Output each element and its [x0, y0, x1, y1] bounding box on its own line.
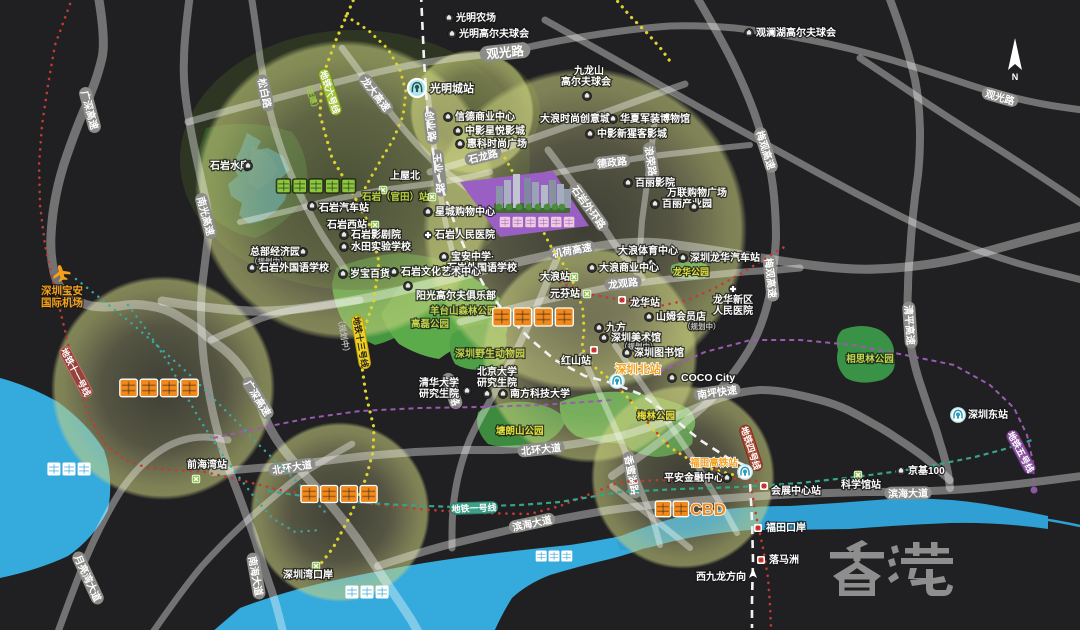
svg-text:前海湾站: 前海湾站 — [187, 458, 227, 471]
svg-text:石岩外国语学校: 石岩外国语学校 — [258, 261, 330, 274]
svg-text:滨海大道: 滨海大道 — [888, 487, 928, 501]
svg-text:大浪站: 大浪站 — [540, 270, 570, 283]
svg-text:高尔夫球会: 高尔夫球会 — [561, 75, 611, 88]
svg-text:COCO City: COCO City — [681, 372, 735, 384]
svg-text:石岩影剧院: 石岩影剧院 — [350, 228, 401, 241]
svg-text:地铁一号线: 地铁一号线 — [451, 502, 496, 515]
svg-text:深圳图书馆: 深圳图书馆 — [634, 346, 684, 359]
svg-text:科学馆站: 科学馆站 — [841, 478, 881, 491]
svg-text:龙华新区: 龙华新区 — [712, 293, 753, 306]
svg-text:宝安中学·: 宝安中学· — [451, 250, 494, 263]
svg-text:中影新猩客影城: 中影新猩客影城 — [597, 127, 667, 140]
svg-text:N: N — [1012, 72, 1019, 82]
svg-text:石岩文化艺术中心: 石岩文化艺术中心 — [400, 265, 481, 278]
svg-text:人民医院: 人民医院 — [713, 304, 753, 317]
svg-text:九龙山: 九龙山 — [573, 64, 604, 77]
svg-text:中影星悦影城: 中影星悦影城 — [465, 124, 525, 137]
svg-text:CBD: CBD — [690, 501, 726, 519]
svg-text:光明农场: 光明农场 — [455, 11, 496, 24]
svg-text:京基100: 京基100 — [908, 464, 945, 477]
svg-text:观澜湖高尔夫球会: 观澜湖高尔夫球会 — [756, 26, 836, 39]
svg-text:深圳野生动物园: 深圳野生动物园 — [455, 347, 525, 360]
svg-text:相思林公园: 相思林公园 — [846, 353, 894, 365]
svg-text:国际机场: 国际机场 — [41, 296, 83, 309]
svg-text:福田高铁站: 福田高铁站 — [689, 457, 738, 469]
svg-text:岁宝百货: 岁宝百货 — [350, 267, 390, 280]
svg-text:红山站: 红山站 — [561, 354, 591, 367]
svg-text:龙华公园: 龙华公园 — [672, 266, 709, 277]
svg-text:深圳湾口岸: 深圳湾口岸 — [283, 568, 333, 581]
svg-text:（规划中）: （规划中） — [683, 321, 721, 331]
svg-text:深圳龙华汽车站: 深圳龙华汽车站 — [690, 251, 760, 264]
svg-text:光明高尔夫球会: 光明高尔夫球会 — [458, 27, 529, 40]
svg-text:信德商业中心: 信德商业中心 — [455, 110, 515, 123]
svg-text:大浪商业中心: 大浪商业中心 — [599, 261, 659, 274]
svg-text:研究生院: 研究生院 — [477, 376, 517, 389]
svg-text:大浪体育中心: 大浪体育中心 — [618, 244, 678, 257]
svg-text:上屋北: 上屋北 — [390, 169, 420, 182]
svg-text:北京大学: 北京大学 — [477, 365, 517, 378]
svg-text:研究生院: 研究生院 — [419, 387, 459, 400]
svg-text:落马洲: 落马洲 — [769, 553, 799, 566]
svg-text:阳光高尔夫俱乐部: 阳光高尔夫俱乐部 — [416, 289, 496, 302]
svg-text:梅林公园: 梅林公园 — [637, 410, 675, 422]
svg-text:塘朗山公园: 塘朗山公园 — [496, 425, 544, 437]
svg-text:石岩（官田）站: 石岩（官田）站 — [361, 191, 429, 203]
svg-text:光明城站: 光明城站 — [429, 81, 474, 95]
svg-text:会展中心站: 会展中心站 — [771, 484, 821, 497]
svg-text:南方科技大学: 南方科技大学 — [510, 387, 570, 400]
svg-text:深圳东站: 深圳东站 — [968, 408, 1008, 421]
svg-text:高磊公园: 高磊公园 — [411, 318, 449, 330]
svg-text:龙华站: 龙华站 — [629, 296, 660, 309]
svg-text:羊台山森林公园: 羊台山森林公园 — [430, 305, 497, 317]
svg-text:石岩汽车站: 石岩汽车站 — [318, 201, 369, 214]
svg-text:华夏军装博物馆: 华夏军装博物馆 — [620, 112, 690, 125]
svg-text:元芬站: 元芬站 — [550, 287, 580, 300]
svg-text:平安金融中心: 平安金融中心 — [664, 471, 724, 484]
svg-text:西九龙方向: 西九龙方向 — [696, 570, 746, 583]
svg-text:深圳宝安: 深圳宝安 — [41, 284, 83, 297]
svg-text:石岩人民医院: 石岩人民医院 — [434, 228, 495, 241]
svg-text:深圳北站: 深圳北站 — [615, 362, 661, 376]
svg-text:万联购物广场: 万联购物广场 — [666, 186, 727, 199]
svg-text:大浪时尚创意城: 大浪时尚创意城 — [540, 112, 610, 125]
svg-text:惠科时尚广场: 惠科时尚广场 — [467, 137, 527, 150]
svg-text:星城购物中心: 星城购物中心 — [435, 205, 495, 218]
svg-text:水田实验学校: 水田实验学校 — [350, 240, 412, 253]
svg-text:清华大学: 清华大学 — [419, 376, 459, 389]
svg-text:福田口岸: 福田口岸 — [765, 521, 806, 534]
